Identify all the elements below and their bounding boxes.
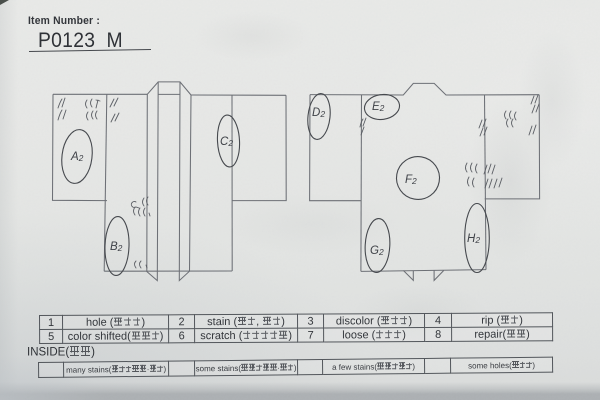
svg-text:G2: G2 xyxy=(370,245,384,257)
svg-text:A2: A2 xyxy=(70,151,84,163)
svg-text:C2: C2 xyxy=(220,136,233,148)
svg-text:E2: E2 xyxy=(372,101,385,113)
svg-text:F2: F2 xyxy=(405,174,417,186)
svg-text:B2: B2 xyxy=(110,241,123,253)
svg-text:D2: D2 xyxy=(312,107,325,119)
svg-text:H2: H2 xyxy=(467,233,480,245)
